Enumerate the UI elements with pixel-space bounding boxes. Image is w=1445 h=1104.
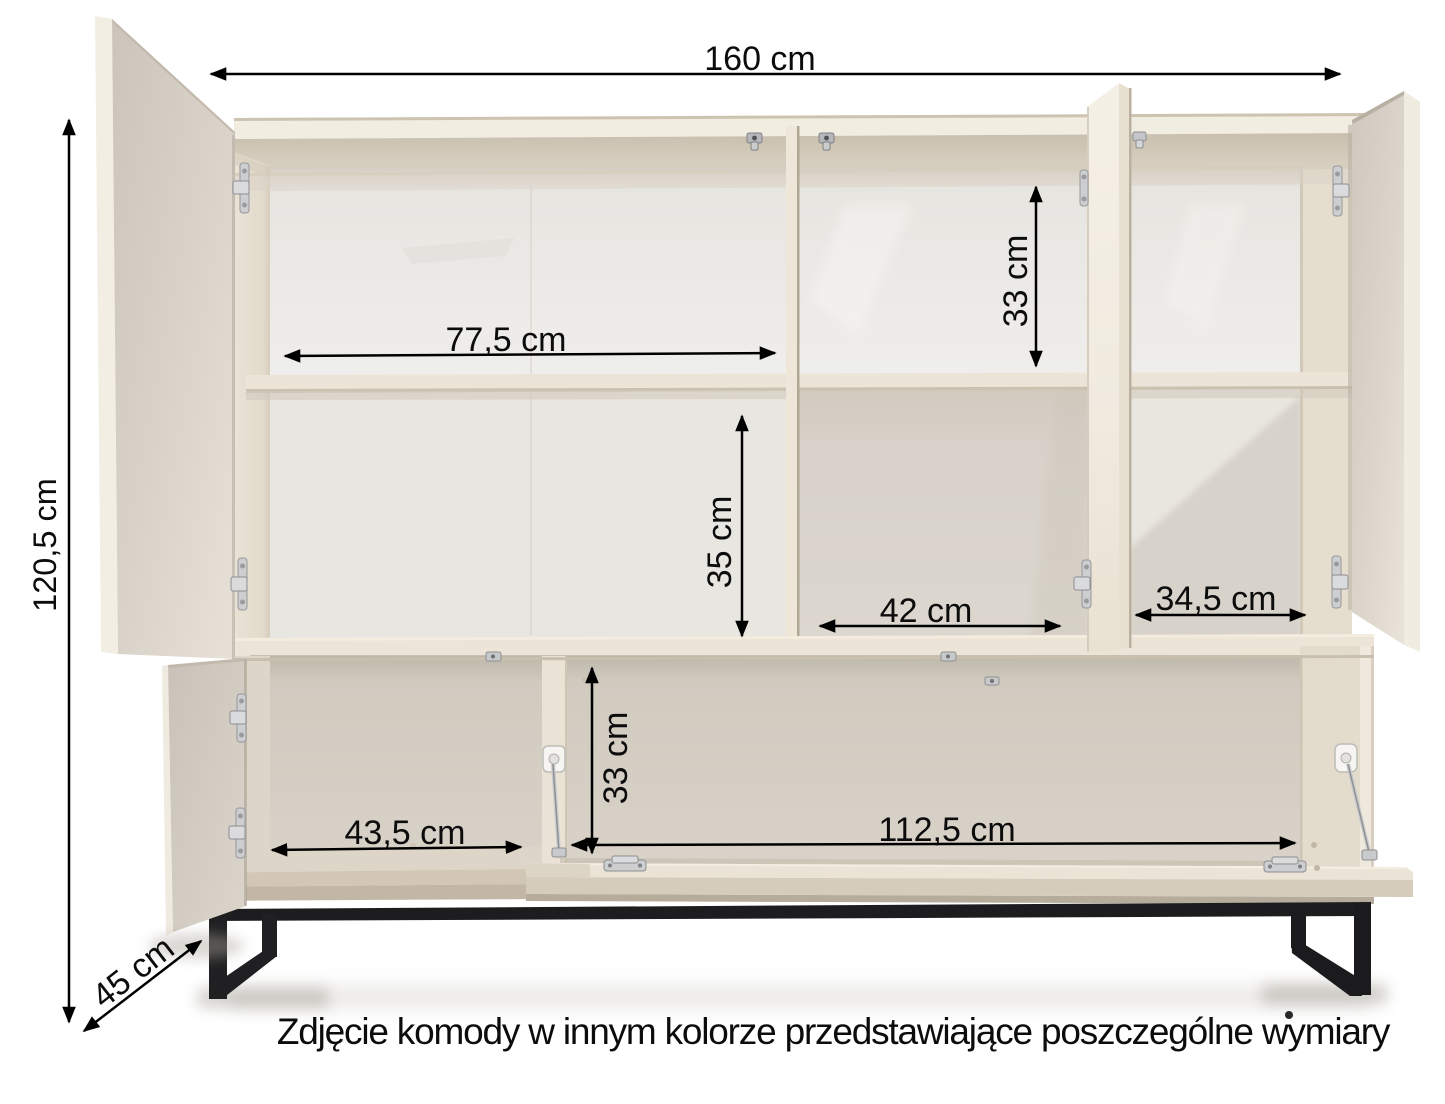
svg-text:42 cm: 42 cm xyxy=(880,592,973,630)
svg-text:35 cm: 35 cm xyxy=(701,496,739,589)
svg-text:112,5 cm: 112,5 cm xyxy=(878,811,1015,849)
svg-text:Zdjęcie komody w innym kolorze: Zdjęcie komody w innym kolorze przedstaw… xyxy=(277,1011,1391,1052)
svg-text:77,5 cm: 77,5 cm xyxy=(446,321,567,359)
svg-text:33 cm: 33 cm xyxy=(597,712,635,805)
svg-text:120,5 cm: 120,5 cm xyxy=(27,478,63,612)
svg-text:160 cm: 160 cm xyxy=(704,40,816,78)
svg-text:34,5 cm: 34,5 cm xyxy=(1156,580,1277,618)
svg-text:33 cm: 33 cm xyxy=(997,235,1035,328)
svg-text:43,5 cm: 43,5 cm xyxy=(345,814,466,852)
